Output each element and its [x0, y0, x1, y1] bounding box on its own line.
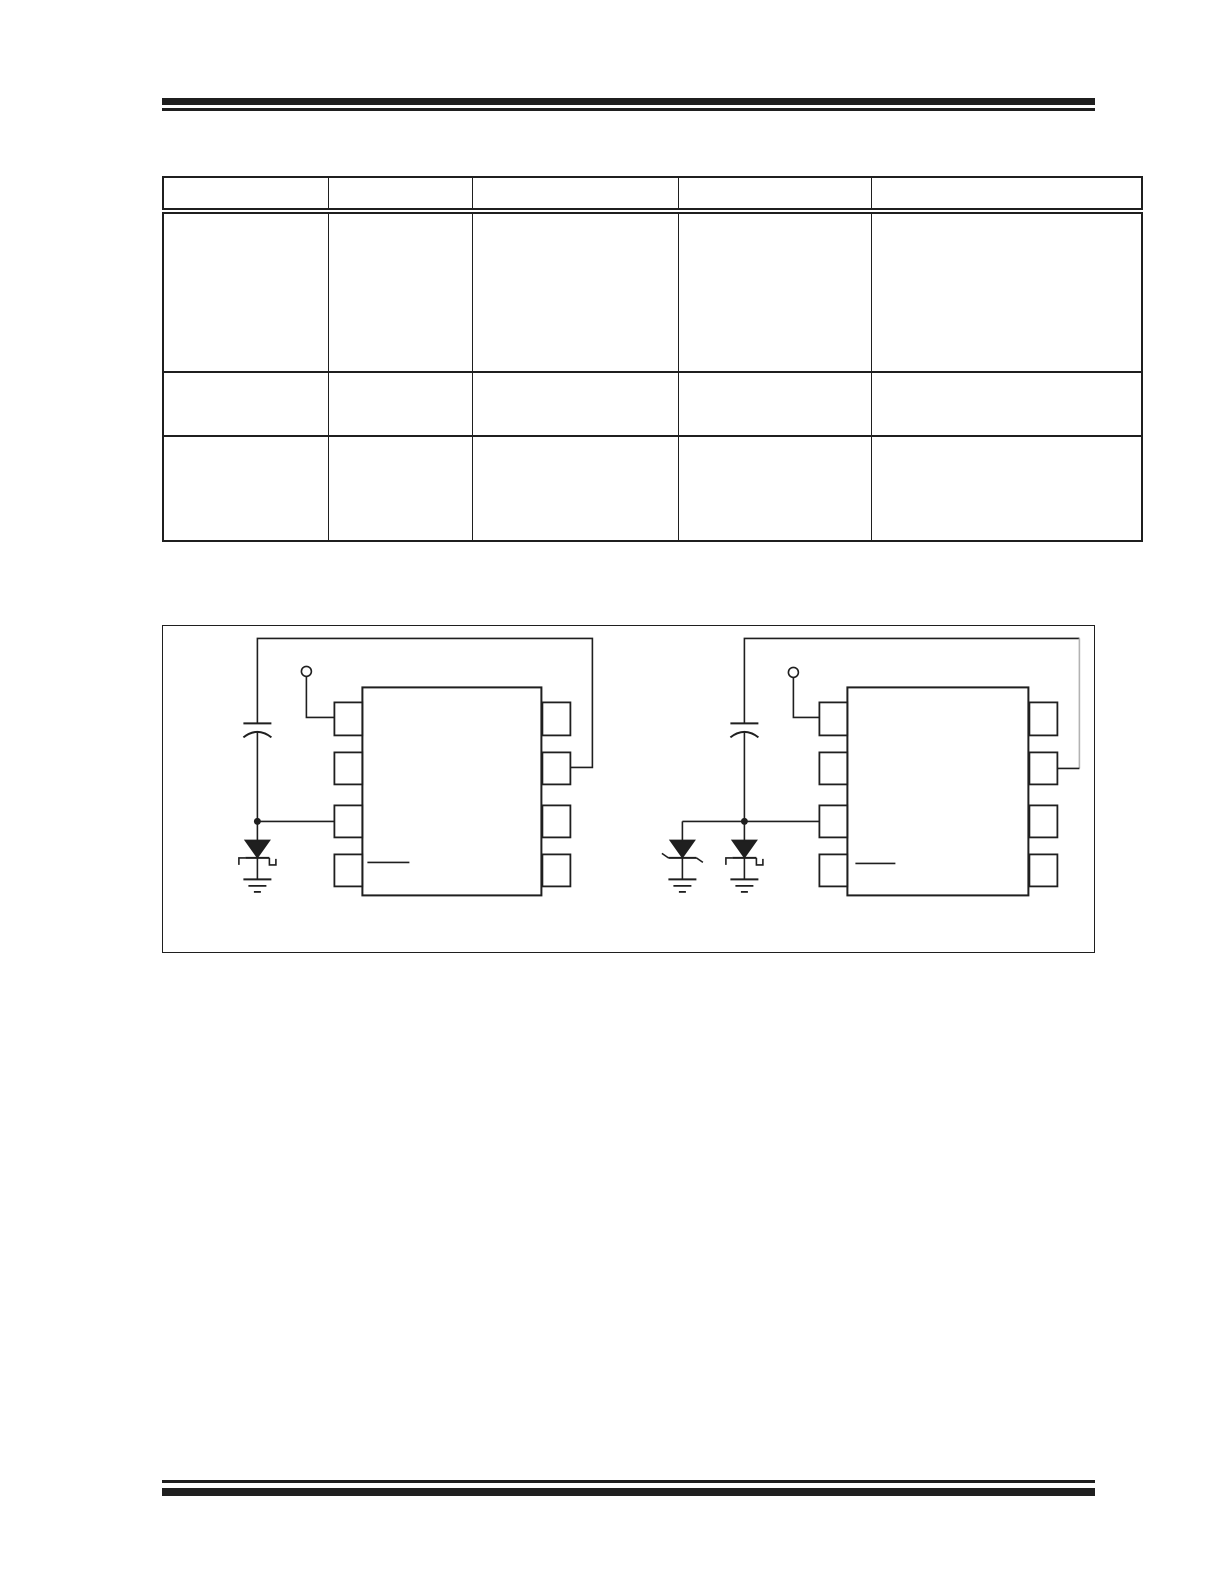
- table-header-cell: [679, 177, 872, 211]
- table-cell: [872, 436, 1143, 541]
- table-cell: [329, 436, 473, 541]
- pin-box: [819, 752, 847, 784]
- table-row: [163, 436, 1142, 541]
- pin-box: [1029, 752, 1057, 784]
- diode-triangle: [245, 840, 269, 857]
- table-cell: [872, 372, 1143, 436]
- schematic-canvas: [163, 626, 1093, 951]
- diode-cathode-hook-right: [269, 858, 276, 865]
- table-header-cell: [329, 177, 473, 211]
- table-header-cell: [473, 177, 679, 211]
- table-cell: [679, 372, 872, 436]
- pin-box: [1029, 805, 1057, 837]
- diode-triangle: [732, 840, 756, 857]
- pin-box: [819, 854, 847, 886]
- pin-box: [334, 854, 362, 886]
- open-terminal-icon: [301, 666, 311, 676]
- pin-box: [542, 805, 570, 837]
- header-rule-thick: [162, 98, 1095, 105]
- wire: [793, 677, 819, 717]
- pin-box: [334, 752, 362, 784]
- table-cell: [473, 211, 679, 372]
- table-cell: [329, 372, 473, 436]
- wire: [306, 676, 334, 717]
- footer-rule-thick: [162, 1488, 1095, 1496]
- datasheet-page: [0, 0, 1224, 1584]
- diode-cathode-tick-left: [662, 853, 669, 858]
- junction-dot: [254, 818, 261, 825]
- ic-8pin-package: [819, 687, 1057, 895]
- right-application-circuit: [662, 638, 1080, 895]
- footer-rule-thin: [162, 1480, 1095, 1483]
- table-cell: [329, 211, 473, 372]
- diode-cathode-hook-right: [756, 858, 763, 865]
- open-terminal-icon: [788, 667, 798, 677]
- table-header-row: [163, 177, 1142, 211]
- diode-triangle: [670, 840, 694, 857]
- diode-cathode-tick-right: [696, 858, 703, 863]
- pin-box: [819, 805, 847, 837]
- pin-box: [542, 854, 570, 886]
- left-application-circuit: [239, 638, 593, 895]
- pin-box: [542, 752, 570, 784]
- diode-cathode-hook-left: [726, 858, 733, 865]
- diode-cathode-hook-left: [239, 858, 246, 865]
- pin-box: [819, 702, 847, 735]
- ic-body: [362, 687, 541, 895]
- ic-8pin-package: [334, 687, 570, 895]
- table-cell: [163, 436, 329, 541]
- ground-icon: [243, 879, 271, 892]
- figure-frame: [162, 625, 1095, 953]
- table-cell: [473, 436, 679, 541]
- pin-box: [334, 805, 362, 837]
- table-header-cell: [163, 177, 329, 211]
- table-header-cell: [872, 177, 1143, 211]
- pin-box: [542, 702, 570, 735]
- table-row: [163, 211, 1142, 372]
- header-rule-thin: [162, 108, 1095, 111]
- table-cell: [163, 372, 329, 436]
- table-row: [163, 372, 1142, 436]
- ground-icon: [668, 879, 696, 892]
- pin-box: [334, 702, 362, 735]
- ground-icon: [730, 879, 758, 892]
- table-cell: [473, 372, 679, 436]
- spec-table: [162, 176, 1143, 542]
- pin-box: [1029, 854, 1057, 886]
- table-cell: [679, 436, 872, 541]
- table-cell: [163, 211, 329, 372]
- pin-box: [1029, 702, 1057, 735]
- junction-dot: [741, 818, 748, 825]
- table-cell: [872, 211, 1143, 372]
- table-cell: [679, 211, 872, 372]
